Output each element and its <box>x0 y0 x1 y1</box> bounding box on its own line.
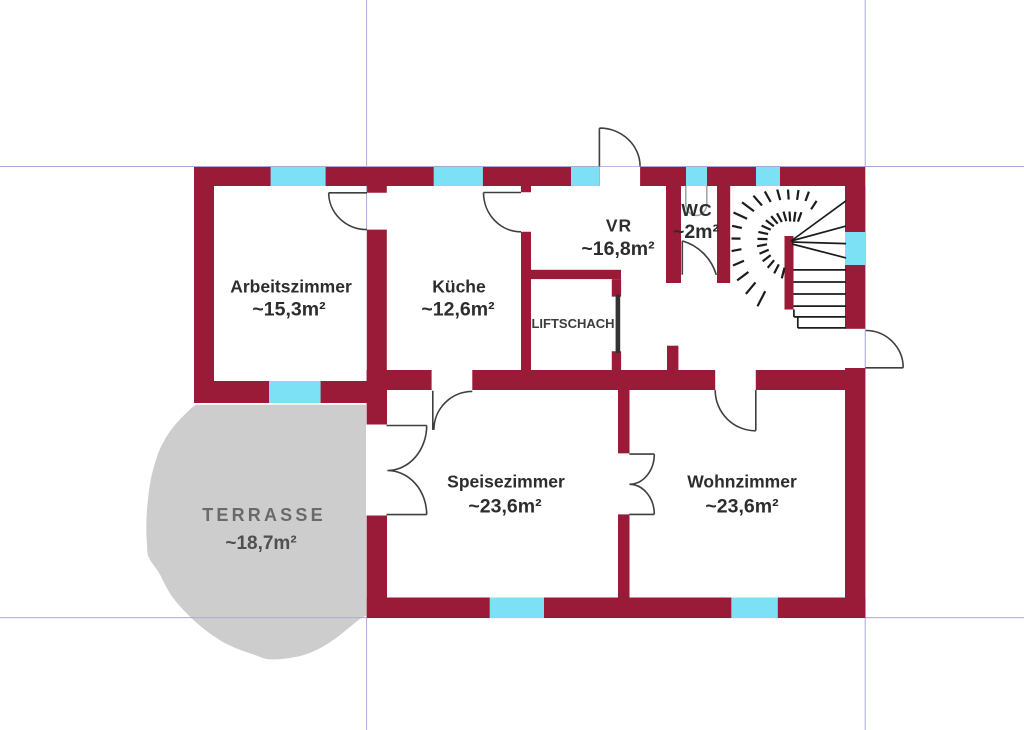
svg-text:~15,3m²: ~15,3m² <box>252 299 326 321</box>
svg-text:VR: VR <box>606 216 632 236</box>
svg-text:Speisezimmer: Speisezimmer <box>447 472 565 492</box>
svg-text:LIFTSCHACH: LIFTSCHACH <box>531 316 614 331</box>
svg-text:~16,8m²: ~16,8m² <box>581 238 655 260</box>
svg-text:Arbeitszimmer: Arbeitszimmer <box>230 277 352 297</box>
svg-text:Wohnzimmer: Wohnzimmer <box>687 472 797 492</box>
svg-text:~23,6m²: ~23,6m² <box>705 496 779 518</box>
svg-text:~23,6m²: ~23,6m² <box>468 496 542 518</box>
svg-text:~18,7m²: ~18,7m² <box>225 533 296 554</box>
svg-text:Küche: Küche <box>432 277 486 297</box>
svg-text:TERRASSE: TERRASSE <box>202 505 326 525</box>
svg-text:~12,6m²: ~12,6m² <box>421 299 495 321</box>
svg-text:~2m²: ~2m² <box>673 221 720 243</box>
svg-text:WC: WC <box>681 200 712 220</box>
